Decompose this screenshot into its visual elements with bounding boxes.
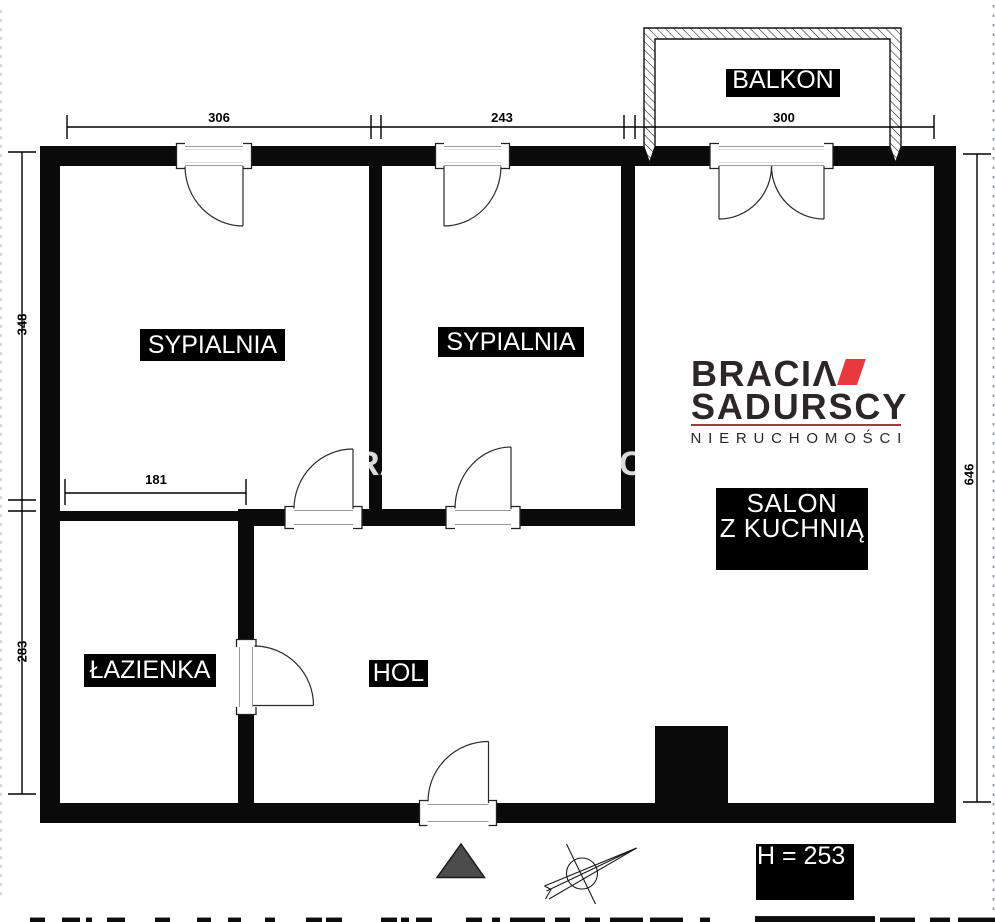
svg-text:C: C bbox=[619, 445, 644, 483]
svg-text:RA: RA bbox=[355, 445, 404, 483]
